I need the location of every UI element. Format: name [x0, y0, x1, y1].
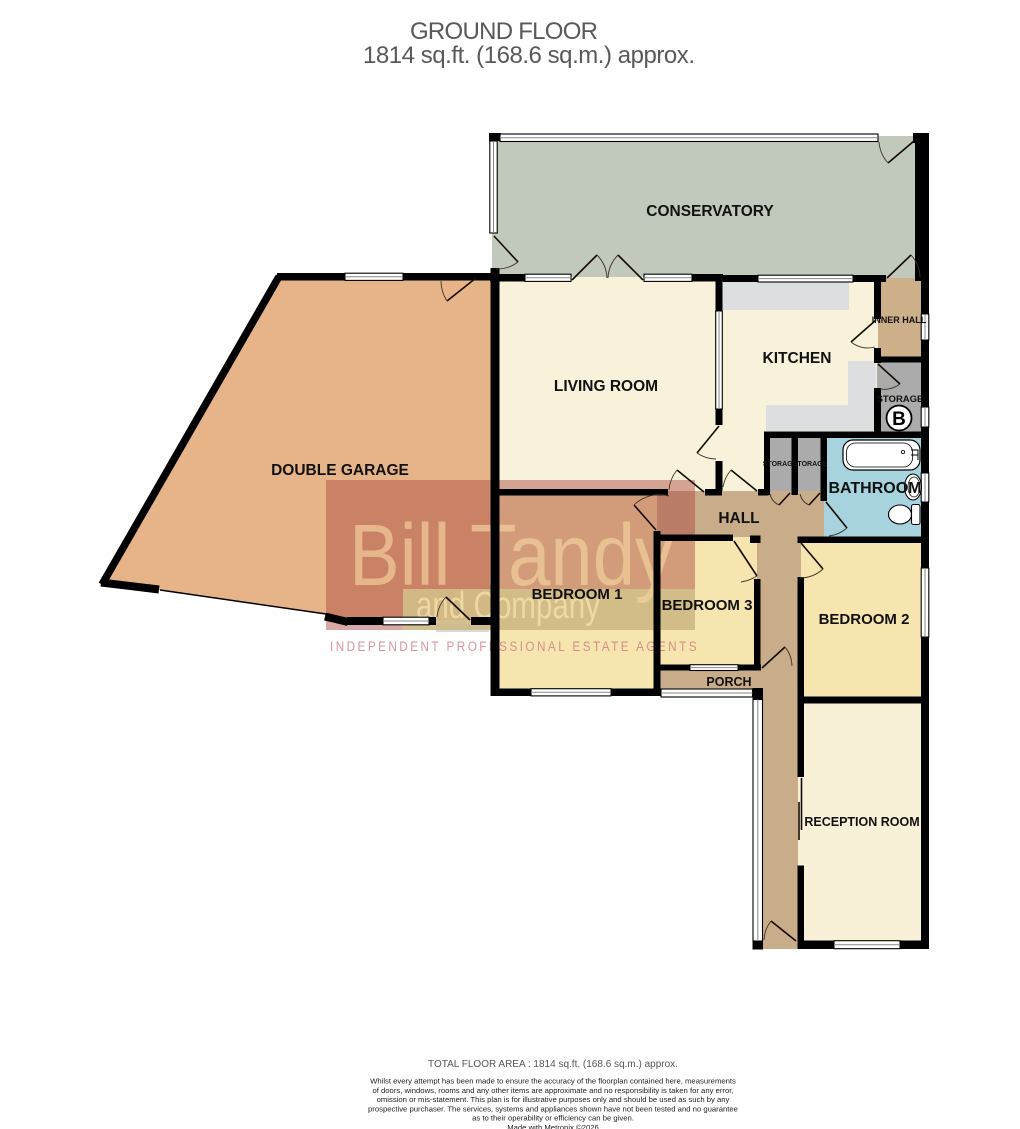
svg-text:INNER HALL: INNER HALL [872, 315, 927, 325]
svg-text:BEDROOM 1: BEDROOM 1 [532, 586, 623, 603]
svg-text:BEDROOM 2: BEDROOM 2 [819, 611, 910, 628]
svg-text:Made with Metropix ©2026: Made with Metropix ©2026 [507, 1123, 599, 1129]
svg-text:DOUBLE GARAGE: DOUBLE GARAGE [271, 462, 409, 479]
svg-text:STORAGE: STORAGE [877, 394, 924, 405]
svg-text:prospective purchaser. The ser: prospective purchaser. The services, sys… [368, 1104, 738, 1113]
svg-text:HALL: HALL [718, 510, 759, 527]
svg-text:KITCHEN: KITCHEN [763, 350, 832, 367]
svg-text:BATHROOM: BATHROOM [828, 480, 921, 497]
svg-text:Whilst every attempt has been: Whilst every attempt has been made to en… [370, 1077, 736, 1086]
svg-text:TOTAL FLOOR AREA : 1814 sq.ft.: TOTAL FLOOR AREA : 1814 sq.ft. (168.6 sq… [428, 1059, 678, 1070]
svg-text:RECEPTION ROOM: RECEPTION ROOM [804, 815, 919, 829]
svg-text:omission or mis-statement. Thi: omission or mis-statement. This plan is … [377, 1095, 730, 1104]
svg-text:as to their operability or eff: as to their operability or efficiency ca… [472, 1114, 634, 1123]
svg-text:of doors, windows, rooms and a: of doors, windows, rooms and any other i… [372, 1086, 733, 1095]
svg-text:B: B [892, 409, 906, 430]
svg-text:LIVING ROOM: LIVING ROOM [554, 378, 658, 395]
svg-text:BEDROOM 3: BEDROOM 3 [662, 597, 753, 614]
svg-text:GROUND FLOOR: GROUND FLOOR [410, 18, 598, 45]
svg-text:CONSERVATORY: CONSERVATORY [646, 203, 774, 220]
svg-text:PORCH: PORCH [706, 675, 751, 689]
svg-text:1814 sq.ft. (168.6 sq.m.) appr: 1814 sq.ft. (168.6 sq.m.) approx. [363, 42, 695, 69]
svg-text:STORAGE: STORAGE [793, 461, 828, 468]
svg-text:INDEPENDENT PROFESSIONAL ESTAT: INDEPENDENT PROFESSIONAL ESTATE AGENTS [330, 639, 699, 654]
